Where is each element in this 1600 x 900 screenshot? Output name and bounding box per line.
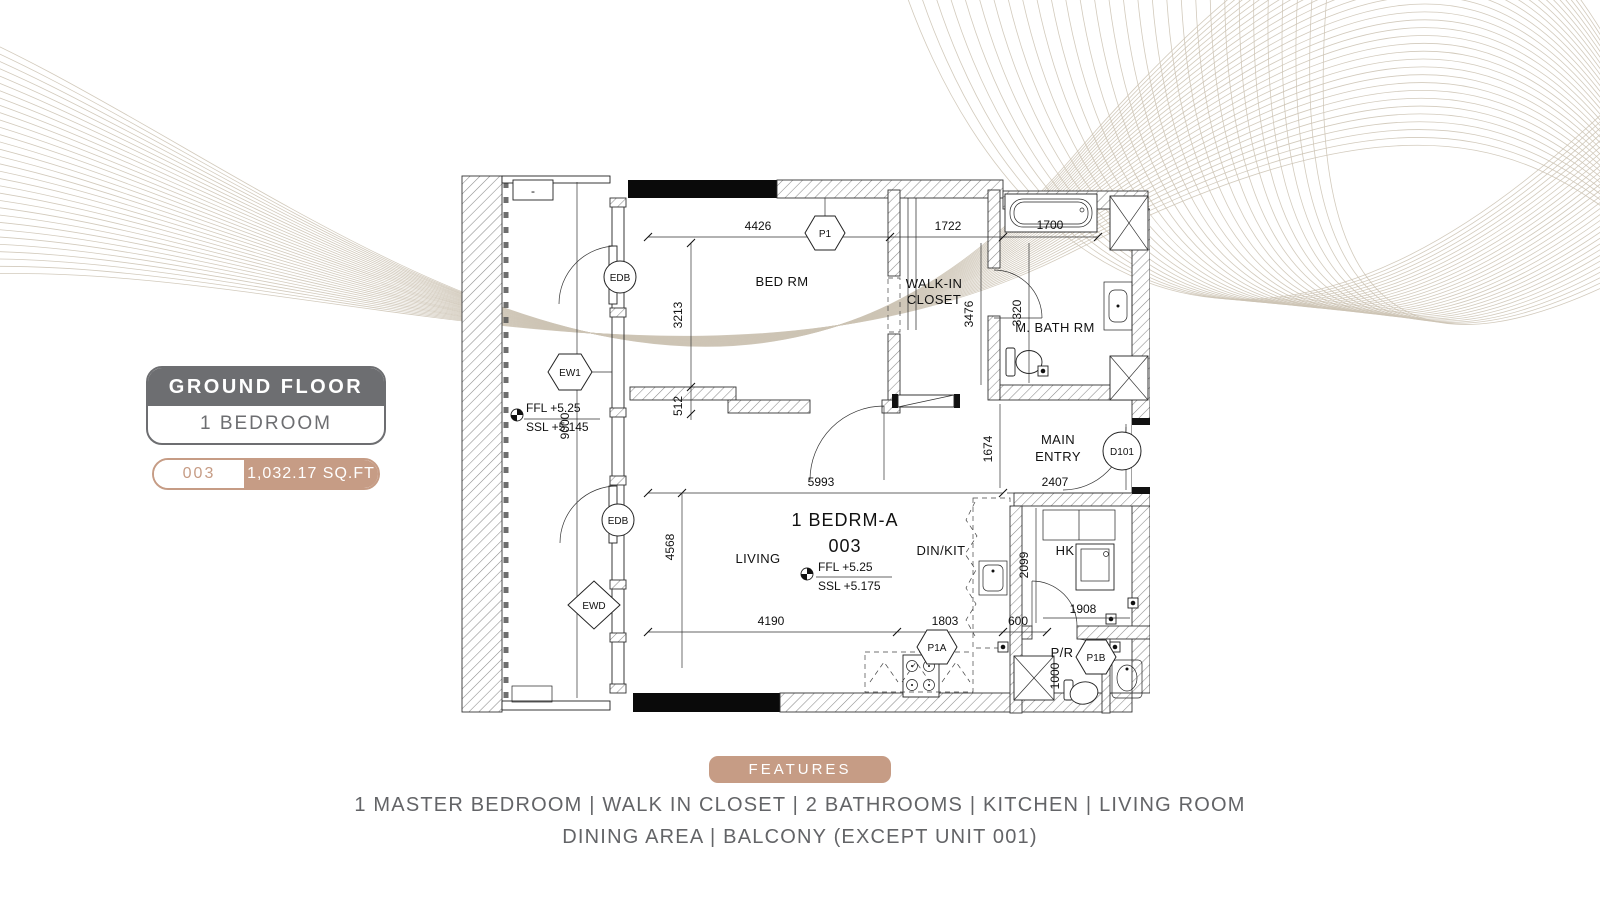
balcony-ffl: FFL +5.25: [526, 401, 581, 415]
dim-closet-width: 1722: [935, 219, 962, 233]
floor-label: GROUND FLOOR: [148, 368, 384, 406]
dim-bed-height: 3213: [671, 301, 685, 328]
label-pr: P/R: [1051, 645, 1074, 660]
tag-ew1: EW1: [559, 368, 581, 379]
unit-title-number: 003: [828, 536, 861, 556]
label-hk: HK: [1056, 543, 1075, 558]
type-label: 1 BEDROOM: [148, 406, 384, 443]
tag-p1: P1: [819, 229, 832, 240]
label-walkin-1: WALK-IN: [906, 276, 963, 291]
dim-tub-width: 1700: [1037, 218, 1064, 232]
dim-bed-width: 4426: [745, 219, 772, 233]
living-ffl: FFL +5.25: [818, 560, 873, 574]
floor-plan: 4426 1722 1700 3213 512 3476 3320 9000 4…: [458, 168, 1150, 714]
unit-title: 1 BEDRM-A: [791, 510, 898, 530]
unit-area-pill: 003 1,032.17 SQ.FT: [152, 458, 380, 490]
tag-p1a: P1A: [928, 643, 947, 654]
living-ssl: SSL +5.175: [818, 579, 881, 593]
unit-info-panel: GROUND FLOOR 1 BEDROOM 003 1,032.17 SQ.F…: [146, 366, 386, 490]
tag-d101: D101: [1110, 447, 1134, 458]
tag-edb-2: EDB: [608, 516, 629, 527]
label-entry-2: ENTRY: [1035, 449, 1081, 464]
label-bedroom: BED RM: [756, 274, 809, 289]
tag-p1b: P1B: [1087, 653, 1106, 664]
closet-shelves: [908, 198, 916, 330]
hk-cabinet: [1043, 510, 1115, 540]
vanity-sink: [1104, 282, 1132, 330]
level-markers: FFL +5.25 SSL +5.175 FFL +5.25 SSL +5.14…: [511, 401, 892, 593]
floor-type-card: GROUND FLOOR 1 BEDROOM: [146, 366, 386, 445]
dim-kitchen-depth: 600: [1008, 614, 1028, 628]
dim-entry-height: 1674: [981, 435, 995, 462]
toilet-mbath: [1006, 348, 1042, 376]
dim-kitchen-bottom: 1803: [932, 614, 959, 628]
label-walkin-2: CLOSET: [907, 292, 961, 307]
dim-pr-height: 1000: [1048, 662, 1062, 689]
unit-number: 003: [154, 460, 244, 488]
dim-entry-width: 2407: [1042, 475, 1069, 489]
washing-machine: [1076, 544, 1114, 590]
dim-hk-width: 1908: [1070, 602, 1097, 616]
features-line-2: DINING AREA | BALCONY (EXCEPT UNIT 001): [0, 826, 1600, 849]
dim-living-bottom: 4190: [758, 614, 785, 628]
balcony-ssl: SSL +5.145: [526, 420, 589, 434]
unit-area: 1,032.17 SQ.FT: [244, 460, 378, 488]
dim-step: 512: [671, 396, 685, 416]
tag-ewd: EWD: [582, 601, 605, 612]
tag-edb-1: EDB: [610, 273, 631, 284]
panel-box-label: -: [531, 184, 535, 198]
features-section: FEATURES 1 MASTER BEDROOM | WALK IN CLOS…: [0, 756, 1600, 849]
label-entry-1: MAIN: [1041, 432, 1075, 447]
dim-living-height: 4568: [663, 533, 677, 560]
features-title: FEATURES: [709, 756, 892, 783]
dim-closet-height: 3476: [962, 300, 976, 327]
label-mbath: M. BATH RM: [1015, 320, 1095, 335]
dim-living-width: 5993: [808, 475, 835, 489]
dim-hk-height: 2099: [1017, 551, 1031, 578]
label-dinkit: DIN/KIT: [916, 543, 965, 558]
features-line-1: 1 MASTER BEDROOM | WALK IN CLOSET | 2 BA…: [0, 794, 1600, 817]
label-living: LIVING: [735, 551, 780, 566]
floor-plan-svg: 4426 1722 1700 3213 512 3476 3320 9000 4…: [458, 168, 1150, 714]
